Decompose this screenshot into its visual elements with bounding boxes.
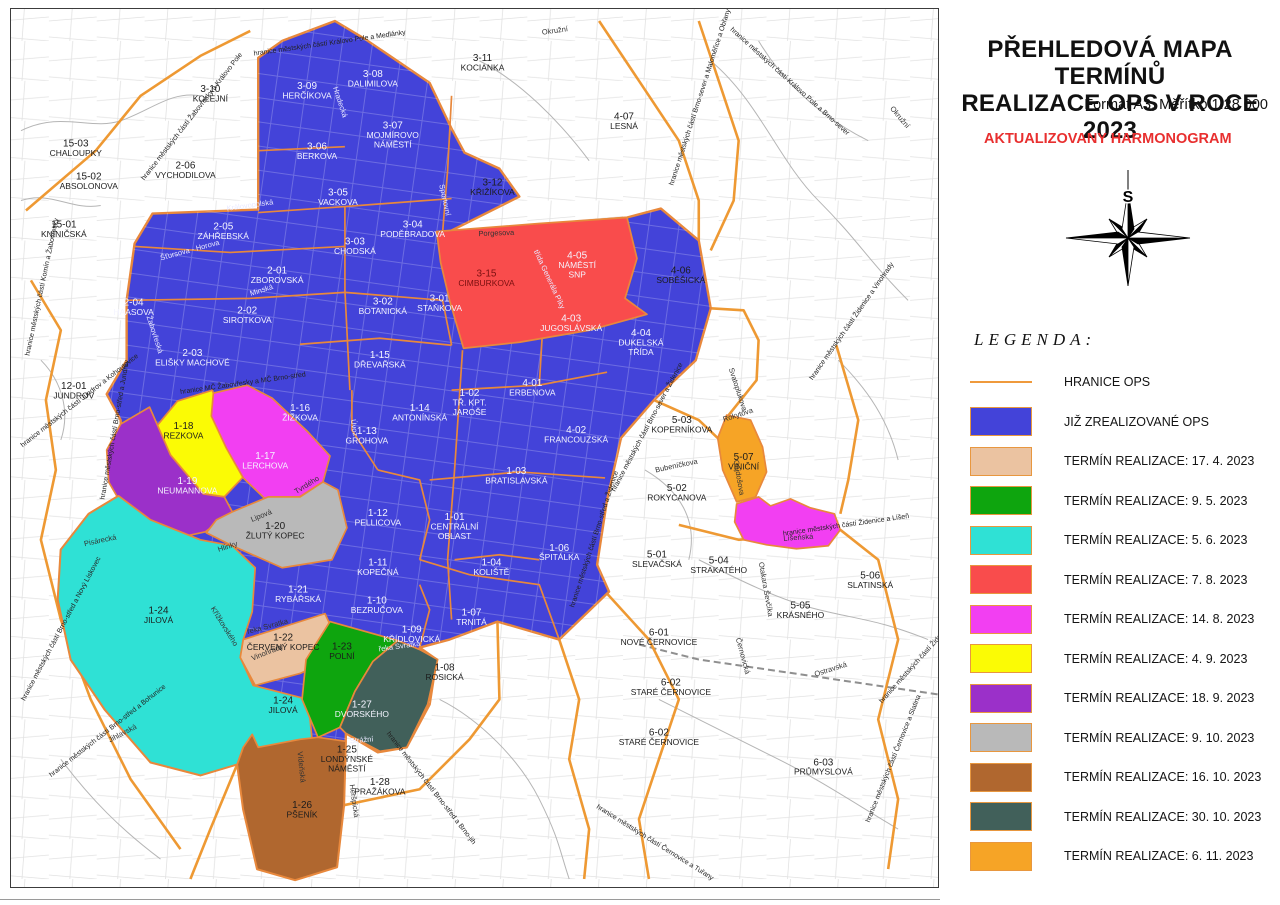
brno-ops-map: hranice městských částí Královo Pole a M… — [11, 9, 938, 887]
legend-label: TERMÍN REALIZACE: 18. 9. 2023 — [1064, 691, 1254, 705]
legend-swatch — [970, 526, 1032, 555]
legend-swatch — [970, 763, 1032, 792]
legend-item: JIŽ ZREALIZOVANÉ OPS — [970, 407, 1270, 437]
updated-schedule-note: AKTUALIZOVANY HARMONOGRAM — [984, 131, 1232, 147]
legend-swatch — [970, 486, 1032, 515]
legend-label: TERMÍN REALIZACE: 9. 5. 2023 — [1064, 494, 1247, 508]
legend-swatch — [970, 842, 1032, 871]
legend-title: LEGENDA: — [974, 330, 1096, 350]
district-label: 1-23POLNÍ — [329, 642, 355, 661]
legend-swatch — [970, 407, 1032, 436]
legend-label: TERMÍN REALIZACE: 7. 8. 2023 — [1064, 573, 1247, 587]
legend-swatch — [970, 565, 1032, 594]
legend-item: HRANICE OPS — [970, 367, 1270, 397]
legend-item: TERMÍN REALIZACE: 17. 4. 2023 — [970, 446, 1270, 476]
legend-item: TERMÍN REALIZACE: 16. 10. 2023 — [970, 762, 1270, 792]
legend-item: TERMÍN REALIZACE: 30. 10. 2023 — [970, 802, 1270, 832]
legend-label: TERMÍN REALIZACE: 16. 10. 2023 — [1064, 770, 1261, 784]
legend-item: TERMÍN REALIZACE: 9. 10. 2023 — [970, 723, 1270, 753]
legend-swatch — [970, 684, 1032, 713]
legend-label: TERMÍN REALIZACE: 14. 8. 2023 — [1064, 612, 1254, 626]
legend-swatch — [970, 802, 1032, 831]
legend-item: TERMÍN REALIZACE: 5. 6. 2023 — [970, 525, 1270, 555]
legend-swatch — [970, 644, 1032, 673]
legend-label: TERMÍN REALIZACE: 30. 10. 2023 — [1064, 810, 1261, 824]
legend-label: JIŽ ZREALIZOVANÉ OPS — [1064, 415, 1209, 429]
legend-item: TERMÍN REALIZACE: 18. 9. 2023 — [970, 683, 1270, 713]
legend-item: TERMÍN REALIZACE: 9. 5. 2023 — [970, 486, 1270, 516]
street-label: Porgesova — [478, 228, 515, 238]
info-panel: PŘEHLEDOVÁ MAPA TERMÍNŮ REALIZACE OPS V … — [940, 0, 1280, 905]
legend-line-sample — [970, 368, 1032, 397]
compass-rose-icon: S — [1058, 160, 1198, 312]
map-title: PŘEHLEDOVÁ MAPA TERMÍNŮ REALIZACE OPS V … — [940, 36, 1280, 144]
legend-swatch — [970, 605, 1032, 634]
legend-item: TERMÍN REALIZACE: 4. 9. 2023 — [970, 644, 1270, 674]
compass-north-label: S — [1123, 189, 1134, 206]
legend-label: TERMÍN REALIZACE: 17. 4. 2023 — [1064, 454, 1254, 468]
legend-items: HRANICE OPSJIŽ ZREALIZOVANÉ OPSTERMÍN RE… — [970, 367, 1270, 871]
legend-label: TERMÍN REALIZACE: 9. 10. 2023 — [1064, 731, 1254, 745]
map-canvas: hranice městských částí Královo Pole a M… — [10, 8, 939, 888]
legend-item: TERMÍN REALIZACE: 6. 11. 2023 — [970, 841, 1270, 871]
legend-label: HRANICE OPS — [1064, 375, 1150, 389]
legend-item: TERMÍN REALIZACE: 14. 8. 2023 — [970, 604, 1270, 634]
legend-label: TERMÍN REALIZACE: 5. 6. 2023 — [1064, 533, 1247, 547]
legend-swatch — [970, 447, 1032, 476]
map-subtitle: Formát A3, Měřítko 1:28 000 — [940, 97, 1268, 113]
legend-label: TERMÍN REALIZACE: 4. 9. 2023 — [1064, 652, 1247, 666]
map-title-line1: PŘEHLEDOVÁ MAPA TERMÍNŮ — [940, 36, 1280, 90]
legend-label: TERMÍN REALIZACE: 6. 11. 2023 — [1064, 849, 1253, 863]
legend-swatch — [970, 723, 1032, 752]
legend-item: TERMÍN REALIZACE: 7. 8. 2023 — [970, 565, 1270, 595]
